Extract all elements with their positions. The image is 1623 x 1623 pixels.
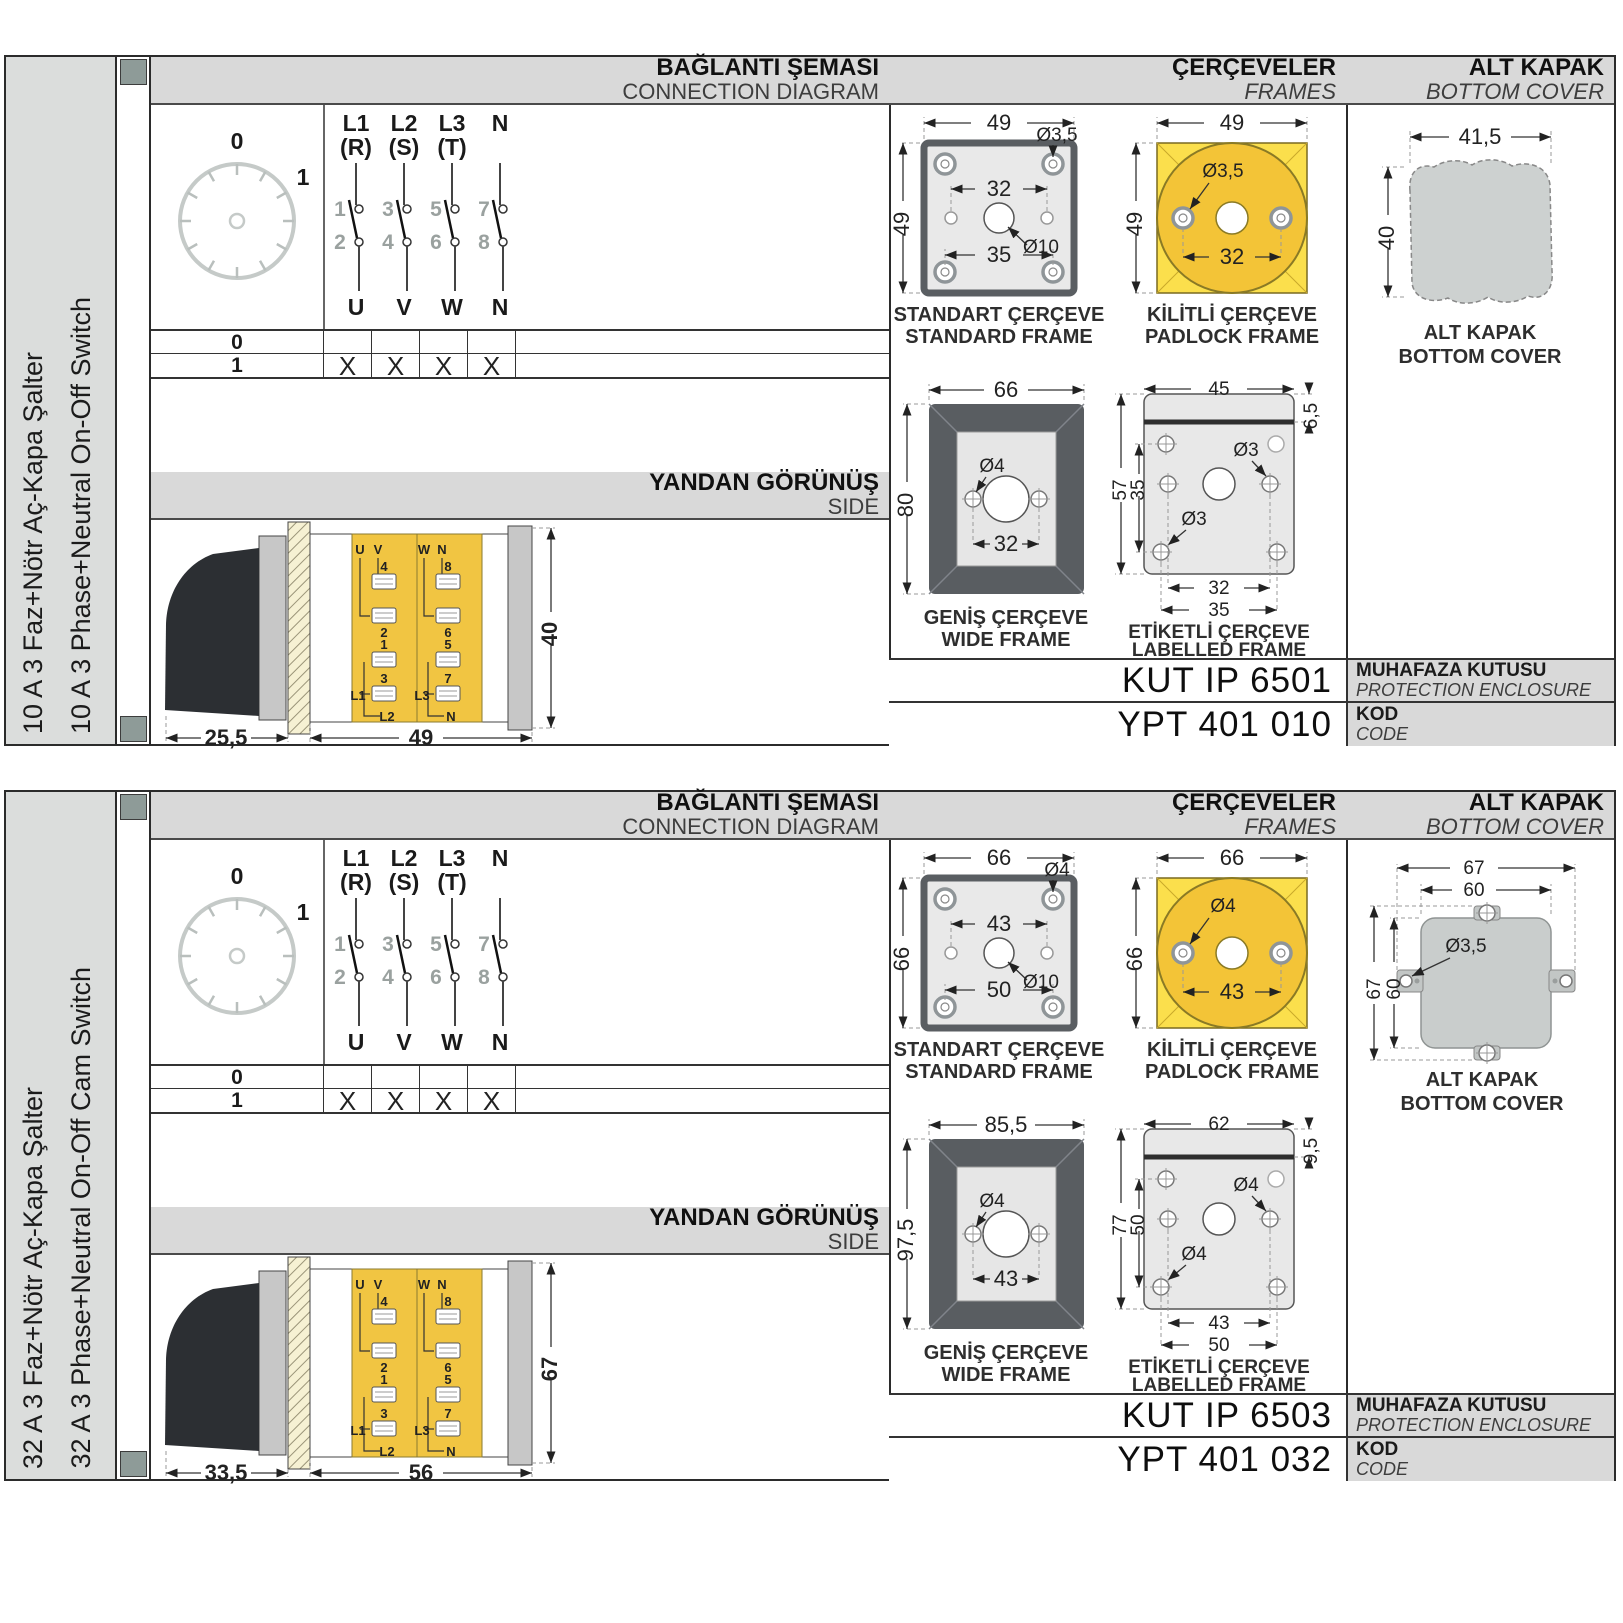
svg-text:0: 0 <box>231 863 244 889</box>
switch-dial: 0 1 <box>180 863 310 1013</box>
svg-text:35: 35 <box>1128 479 1149 500</box>
svg-text:N: N <box>492 845 509 871</box>
bottom-cover-drawing: 67 60 67 60 Ø3,5 ALT KAPAK BOTTOM COVER <box>1346 840 1614 1130</box>
svg-text:N: N <box>446 709 455 724</box>
connection-title-en: CONNECTION DIAGRAM <box>622 816 879 839</box>
svg-text:49: 49 <box>1220 110 1244 135</box>
dim-cover-height: 40 <box>1374 226 1399 250</box>
product-label-strip: 10 A 3 Faz+Nötr Aç-Kapa Şalter 10 A 3 Ph… <box>6 57 117 744</box>
svg-text:1: 1 <box>334 933 346 956</box>
pole-l3: L3 (T) 5 6 W <box>430 845 467 1055</box>
product-panel-32a: 32 A 3 Faz+Nötr Aç-Kapa Şalter 32 A 3 Ph… <box>4 790 1616 1481</box>
dim-labelled-hole1: Ø3 <box>1233 440 1258 461</box>
dim-cover-outer-w: 67 <box>1463 858 1484 879</box>
labelled-frame-drawing: 45 6,5 57 35 Ø3 Ø3 32 35 ETİ <box>1110 379 1322 661</box>
enclosure-row: KUT IP 6503 MUHAFAZA KUTUSU PROTECTION E… <box>889 1395 1614 1438</box>
svg-text:GENİŞ ÇERÇEVE: GENİŞ ÇERÇEVE <box>924 1341 1088 1364</box>
connection-title-en: CONNECTION DIAGRAM <box>622 81 879 104</box>
state-cell: X <box>324 1089 372 1112</box>
svg-text:L2: L2 <box>379 1444 394 1459</box>
svg-text:4: 4 <box>380 559 388 574</box>
svg-text:PADLOCK FRAME: PADLOCK FRAME <box>1145 1061 1319 1083</box>
cover-title-en: BOTTOM COVER <box>1426 81 1604 104</box>
side-title-tr: YANDAN GÖRÜNÜŞ <box>649 471 879 496</box>
svg-text:32: 32 <box>1208 578 1229 599</box>
connection-header: BAĞLANTI ŞEMASI CONNECTION DIAGRAM <box>151 792 889 840</box>
svg-text:66: 66 <box>1220 845 1244 870</box>
code-label: KOD CODE <box>1346 1438 1614 1481</box>
svg-text:97,5: 97,5 <box>893 1219 918 1262</box>
svg-text:43: 43 <box>1220 979 1244 1004</box>
svg-text:49: 49 <box>1122 212 1147 236</box>
code-label: KOD CODE <box>1346 703 1614 746</box>
mounting-panel <box>288 522 310 734</box>
state-cell: X <box>324 354 372 377</box>
frames-top-drawings: 66 66 Ø4 43 Ø10 50 STANDART ÇERÇEVE STAN… <box>889 840 1346 1117</box>
connection-title-tr: BAĞLANTI ŞEMASI <box>656 56 879 81</box>
svg-text:(T): (T) <box>437 869 466 895</box>
padlock-frame-drawing: 66 66 Ø4 43 KİLİTLİ ÇERÇEVE PADLOCK FRAM… <box>1122 845 1319 1083</box>
svg-text:6: 6 <box>430 231 442 254</box>
svg-text:1: 1 <box>297 899 310 925</box>
state-cell-empty <box>516 331 889 354</box>
svg-text:L2: L2 <box>391 110 418 136</box>
dim-cover-inner-w: 60 <box>1463 880 1484 901</box>
code-table: KUT IP 6503 MUHAFAZA KUTUSU PROTECTION E… <box>889 1393 1614 1481</box>
svg-text:5: 5 <box>430 198 442 221</box>
svg-text:W: W <box>441 1029 463 1055</box>
side-view-header: YANDAN GÖRÜNÜŞ SIDE <box>151 472 889 520</box>
connection-diagram-drawing: 0 1 L1 (R) 1 2 U L2 (S) <box>151 105 889 329</box>
frames-header: ÇERÇEVELER FRAMES <box>889 57 1346 105</box>
terminal-block: U V 4 2 1 3 L1 L2 W N 8 6 5 7 <box>350 534 482 724</box>
svg-text:W: W <box>418 1277 431 1292</box>
svg-text:7: 7 <box>478 198 490 221</box>
svg-text:9,5: 9,5 <box>1301 1138 1322 1164</box>
padlock-frame-drawing: 49 49 Ø3,5 32 KİLİTLİ ÇERÇEVE PADLOCK FR… <box>1122 110 1319 348</box>
svg-text:43: 43 <box>1208 1313 1229 1334</box>
frames-bottom-drawings: 66 80 Ø4 32 GENİŞ ÇERÇEVE WIDE FRAME <box>889 382 1346 658</box>
frames-title-en: FRAMES <box>1244 816 1336 839</box>
svg-text:2: 2 <box>334 231 346 254</box>
standard-frame-drawing: 66 66 Ø4 43 Ø10 50 STANDART ÇERÇEVE STAN… <box>889 845 1104 1083</box>
dim-wide-hole: Ø4 <box>979 456 1005 477</box>
svg-text:50: 50 <box>987 977 1011 1002</box>
svg-text:STANDART ÇERÇEVE: STANDART ÇERÇEVE <box>894 1039 1105 1061</box>
dim-wide-hole: Ø4 <box>979 1191 1005 1212</box>
svg-text:W: W <box>441 294 463 320</box>
dim-handle-depth: 33,5 <box>205 1460 248 1485</box>
dial-pos-0: 0 <box>231 128 244 154</box>
svg-text:N: N <box>437 542 446 557</box>
svg-text:STANDARD FRAME: STANDARD FRAME <box>905 1061 1092 1083</box>
state-cell: X <box>372 1089 420 1112</box>
svg-text:ALT KAPAK: ALT KAPAK <box>1424 322 1537 344</box>
dim-body-height: 40 <box>537 622 562 646</box>
svg-text:N: N <box>437 1277 446 1292</box>
svg-text:50: 50 <box>1208 1335 1229 1356</box>
svg-text:43: 43 <box>994 1266 1018 1291</box>
wide-frame-drawing: 85,5 97,5 Ø4 43 GENİŞ ÇERÇEVE WIDE FRAME <box>893 1112 1088 1386</box>
svg-text:35: 35 <box>987 242 1011 267</box>
svg-text:L2: L2 <box>379 709 394 724</box>
svg-text:L1: L1 <box>350 688 365 703</box>
svg-text:(T): (T) <box>437 134 466 160</box>
svg-text:KİLİTLİ ÇERÇEVE: KİLİTLİ ÇERÇEVE <box>1147 1038 1317 1061</box>
svg-text:2: 2 <box>334 966 346 989</box>
dial-pos-1: 1 <box>297 164 310 190</box>
state-cell-empty <box>516 1089 889 1112</box>
svg-text:49: 49 <box>987 110 1011 135</box>
standard-frame-drawing: 49 49 Ø3,5 32 Ø10 35 STANDART ÇERÇEVE ST… <box>889 110 1104 348</box>
state-row-label: 0 <box>151 331 324 354</box>
dim-labelled-hole2: Ø4 <box>1181 1244 1207 1265</box>
state-cell: X <box>420 354 468 377</box>
svg-text:8: 8 <box>444 1294 451 1309</box>
state-cell-empty <box>516 1066 889 1089</box>
pole-l1: L1 (R) 1 2 U <box>334 845 372 1055</box>
product-name-en: 10 A 3 Phase+Neutral On-Off Switch <box>66 297 97 734</box>
svg-text:V: V <box>396 294 412 320</box>
pole-l1: L1 (R) 1 2 U <box>334 110 372 320</box>
product-code: YPT 401 032 <box>889 1438 1346 1481</box>
svg-text:KİLİTLİ ÇERÇEVE: KİLİTLİ ÇERÇEVE <box>1147 303 1317 326</box>
svg-text:32: 32 <box>1220 244 1244 269</box>
dim-corner-hole: Ø4 <box>1044 860 1070 881</box>
svg-text:L1: L1 <box>343 845 370 871</box>
dim-labelled-hole1: Ø4 <box>1233 1175 1259 1196</box>
binding-square-top <box>120 794 147 820</box>
catalog-page: 10 A 3 Faz+Nötr Aç-Kapa Şalter 10 A 3 Ph… <box>0 0 1623 1623</box>
side-view-drawing: U V 4 2 1 3 L1 L2 W N 8 6 5 7 <box>151 1255 889 1479</box>
wide-frame-drawing: 66 80 Ø4 32 GENİŞ ÇERÇEVE WIDE FRAME <box>893 377 1088 651</box>
bottom-cover-drawing: 41,5 40 ALT KAPAK BOTTOM COVER <box>1346 105 1614 395</box>
svg-text:8: 8 <box>478 966 490 989</box>
svg-text:L3: L3 <box>414 1423 429 1438</box>
dim-cover-width: 41,5 <box>1459 124 1502 149</box>
frames-header: ÇERÇEVELER FRAMES <box>889 792 1346 840</box>
binding-column <box>117 792 151 1479</box>
side-view-drawing: U V 4 2 1 3 L1 L2 W N 8 6 5 7 <box>151 520 889 744</box>
svg-text:U: U <box>355 542 364 557</box>
pole-l2: L2 (S) 3 4 V <box>382 845 419 1055</box>
product-code: YPT 401 010 <box>889 703 1346 746</box>
svg-text:66: 66 <box>889 947 914 971</box>
terminal-block: U V 4 2 1 3 L1 L2 W N 8 6 5 7 <box>350 1269 482 1459</box>
svg-text:(S): (S) <box>389 134 420 160</box>
svg-text:8: 8 <box>444 559 451 574</box>
svg-text:5: 5 <box>430 933 442 956</box>
dim-body-length: 49 <box>409 725 433 750</box>
dim-body-length: 56 <box>409 1460 433 1485</box>
code-row: YPT 401 010 KOD CODE <box>889 703 1614 746</box>
side-view-header: YANDAN GÖRÜNÜŞ SIDE <box>151 1207 889 1255</box>
svg-text:62: 62 <box>1208 1114 1229 1135</box>
dim-corner-hole: Ø3,5 <box>1036 125 1077 146</box>
side-title-en: SIDE <box>828 1231 879 1254</box>
svg-text:8: 8 <box>478 231 490 254</box>
svg-text:V: V <box>374 542 383 557</box>
svg-text:V: V <box>396 1029 412 1055</box>
binding-column <box>117 57 151 744</box>
svg-text:(S): (S) <box>389 869 420 895</box>
svg-text:3: 3 <box>382 933 394 956</box>
svg-text:1: 1 <box>380 637 387 652</box>
svg-text:ALT KAPAK: ALT KAPAK <box>1426 1069 1539 1091</box>
svg-text:7: 7 <box>444 671 451 686</box>
connection-title-tr: BAĞLANTI ŞEMASI <box>656 791 879 816</box>
frames-title-tr: ÇERÇEVELER <box>1172 56 1336 81</box>
svg-text:L3: L3 <box>439 845 466 871</box>
product-name-tr: 10 A 3 Faz+Nötr Aç-Kapa Şalter <box>18 352 49 734</box>
svg-text:4: 4 <box>380 1294 388 1309</box>
labelled-frame-drawing: 62 9,5 77 50 Ø4 Ø4 43 50 ETİ <box>1110 1114 1322 1396</box>
state-row-label: 0 <box>151 1066 324 1089</box>
pole-n: N 7 8 N <box>478 110 508 320</box>
svg-text:WIDE FRAME: WIDE FRAME <box>942 629 1071 651</box>
svg-text:L2: L2 <box>391 845 418 871</box>
svg-text:V: V <box>374 1277 383 1292</box>
frames-title-tr: ÇERÇEVELER <box>1172 791 1336 816</box>
svg-text:PADLOCK FRAME: PADLOCK FRAME <box>1145 326 1319 348</box>
svg-text:3: 3 <box>380 671 387 686</box>
dim-body-height: 67 <box>537 1357 562 1381</box>
svg-text:L1: L1 <box>343 110 370 136</box>
switch-poles: L1 (R) 1 2 U L2 (S) 3 4 V <box>334 110 508 320</box>
svg-text:N: N <box>446 1444 455 1459</box>
svg-text:GENİŞ ÇERÇEVE: GENİŞ ÇERÇEVE <box>924 606 1088 629</box>
switch-handle <box>165 548 259 716</box>
side-title-tr: YANDAN GÖRÜNÜŞ <box>649 1206 879 1231</box>
state-row-label: 1 <box>151 1089 324 1112</box>
code-row: YPT 401 032 KOD CODE <box>889 1438 1614 1481</box>
svg-text:4: 4 <box>382 231 394 254</box>
dim-cover-inner-h: 60 <box>1384 978 1405 999</box>
binding-square-bottom <box>120 716 147 742</box>
frames-bottom-drawings: 85,5 97,5 Ø4 43 GENİŞ ÇERÇEVE WIDE FRAME <box>889 1117 1346 1393</box>
frames-top-drawings: 49 49 Ø3,5 32 Ø10 35 STANDART ÇERÇEVE ST… <box>889 105 1346 382</box>
cover-title-en: BOTTOM COVER <box>1426 816 1604 839</box>
svg-text:6,5: 6,5 <box>1301 403 1322 429</box>
svg-text:7: 7 <box>478 933 490 956</box>
svg-text:66: 66 <box>1122 947 1147 971</box>
dim-cover-outer-h: 67 <box>1364 978 1385 999</box>
pole-l2: L2 (S) 3 4 V <box>382 110 419 320</box>
switch-handle <box>165 1283 259 1451</box>
svg-text:L3: L3 <box>439 110 466 136</box>
pole-l3: L3 (T) 5 6 W <box>430 110 467 320</box>
svg-text:(R): (R) <box>340 134 372 160</box>
svg-text:66: 66 <box>994 377 1018 402</box>
svg-text:80: 80 <box>893 493 918 517</box>
code-table: KUT IP 6501 MUHAFAZA KUTUSU PROTECTION E… <box>889 658 1614 746</box>
side-title-en: SIDE <box>828 496 879 519</box>
state-row-label: 1 <box>151 354 324 377</box>
cover-title-tr: ALT KAPAK <box>1469 56 1604 81</box>
cover-header: ALT KAPAK BOTTOM COVER <box>1346 792 1614 840</box>
svg-text:W: W <box>418 542 431 557</box>
dim-cover-hole: Ø3,5 <box>1445 936 1486 957</box>
cover-header: ALT KAPAK BOTTOM COVER <box>1346 57 1614 105</box>
svg-text:85,5: 85,5 <box>985 1112 1028 1137</box>
svg-text:45: 45 <box>1208 379 1229 400</box>
cover-title-tr: ALT KAPAK <box>1469 791 1604 816</box>
svg-text:BOTTOM COVER: BOTTOM COVER <box>1399 346 1563 368</box>
dim-handle-depth: 25,5 <box>205 725 248 750</box>
svg-text:U: U <box>348 1029 365 1055</box>
svg-text:5: 5 <box>444 1372 451 1387</box>
svg-text:66: 66 <box>987 845 1011 870</box>
state-cell: X <box>468 354 516 377</box>
switch-state-table: 0 1 X X X X <box>151 329 889 379</box>
svg-text:6: 6 <box>430 966 442 989</box>
svg-text:32: 32 <box>987 176 1011 201</box>
svg-text:L3: L3 <box>414 688 429 703</box>
connection-header: BAĞLANTI ŞEMASI CONNECTION DIAGRAM <box>151 57 889 105</box>
svg-text:3: 3 <box>380 1406 387 1421</box>
svg-text:N: N <box>492 294 509 320</box>
svg-text:WIDE FRAME: WIDE FRAME <box>942 1364 1071 1386</box>
state-cell: X <box>420 1089 468 1112</box>
dim-padlock-hole: Ø3,5 <box>1202 161 1243 182</box>
svg-text:BOTTOM COVER: BOTTOM COVER <box>1401 1093 1565 1115</box>
svg-text:5: 5 <box>444 637 451 652</box>
state-cell-empty <box>516 354 889 377</box>
svg-text:32: 32 <box>994 531 1018 556</box>
dim-labelled-hole2: Ø3 <box>1181 509 1206 530</box>
dim-padlock-hole: Ø4 <box>1210 896 1236 917</box>
binding-square-bottom <box>120 1451 147 1477</box>
enclosure-label: MUHAFAZA KUTUSU PROTECTION ENCLOSURE <box>1346 1395 1614 1436</box>
svg-text:49: 49 <box>889 212 914 236</box>
svg-text:43: 43 <box>987 911 1011 936</box>
pole-n: N 7 8 N <box>478 845 508 1055</box>
mounting-panel <box>288 1257 310 1469</box>
svg-text:(R): (R) <box>340 869 372 895</box>
svg-text:STANDART ÇERÇEVE: STANDART ÇERÇEVE <box>894 304 1105 326</box>
svg-text:N: N <box>492 110 509 136</box>
state-cell: X <box>468 1089 516 1112</box>
switch-poles: L1 (R) 1 2 U L2 (S) 3 4 V <box>334 845 508 1055</box>
svg-text:50: 50 <box>1128 1214 1149 1235</box>
switch-dial: 0 1 <box>180 128 310 278</box>
state-cell: X <box>372 354 420 377</box>
svg-text:1: 1 <box>334 198 346 221</box>
cover-shape <box>1410 160 1552 303</box>
switch-state-table: 0 1 X X X X <box>151 1064 889 1114</box>
product-name-tr: 32 A 3 Faz+Nötr Aç-Kapa Şalter <box>18 1087 49 1469</box>
svg-text:3: 3 <box>382 198 394 221</box>
frames-title-en: FRAMES <box>1244 81 1336 104</box>
product-panel-10a: 10 A 3 Faz+Nötr Aç-Kapa Şalter 10 A 3 Ph… <box>4 55 1616 746</box>
svg-text:35: 35 <box>1208 600 1229 621</box>
enclosure-code: KUT IP 6503 <box>889 1395 1346 1436</box>
enclosure-code: KUT IP 6501 <box>889 660 1346 701</box>
enclosure-row: KUT IP 6501 MUHAFAZA KUTUSU PROTECTION E… <box>889 660 1614 703</box>
svg-text:1: 1 <box>380 1372 387 1387</box>
svg-text:U: U <box>348 294 365 320</box>
binding-square-top <box>120 59 147 85</box>
product-label-strip: 32 A 3 Faz+Nötr Aç-Kapa Şalter 32 A 3 Ph… <box>6 792 117 1479</box>
svg-text:N: N <box>492 1029 509 1055</box>
product-name-en: 32 A 3 Phase+Neutral On-Off Cam Switch <box>66 967 97 1469</box>
connection-diagram-drawing: 0 1 L1 (R) 1 2 U L2 (S) <box>151 840 889 1064</box>
enclosure-label: MUHAFAZA KUTUSU PROTECTION ENCLOSURE <box>1346 660 1614 701</box>
svg-text:7: 7 <box>444 1406 451 1421</box>
svg-text:4: 4 <box>382 966 394 989</box>
svg-text:U: U <box>355 1277 364 1292</box>
svg-text:STANDARD FRAME: STANDARD FRAME <box>905 326 1092 348</box>
svg-text:L1: L1 <box>350 1423 365 1438</box>
